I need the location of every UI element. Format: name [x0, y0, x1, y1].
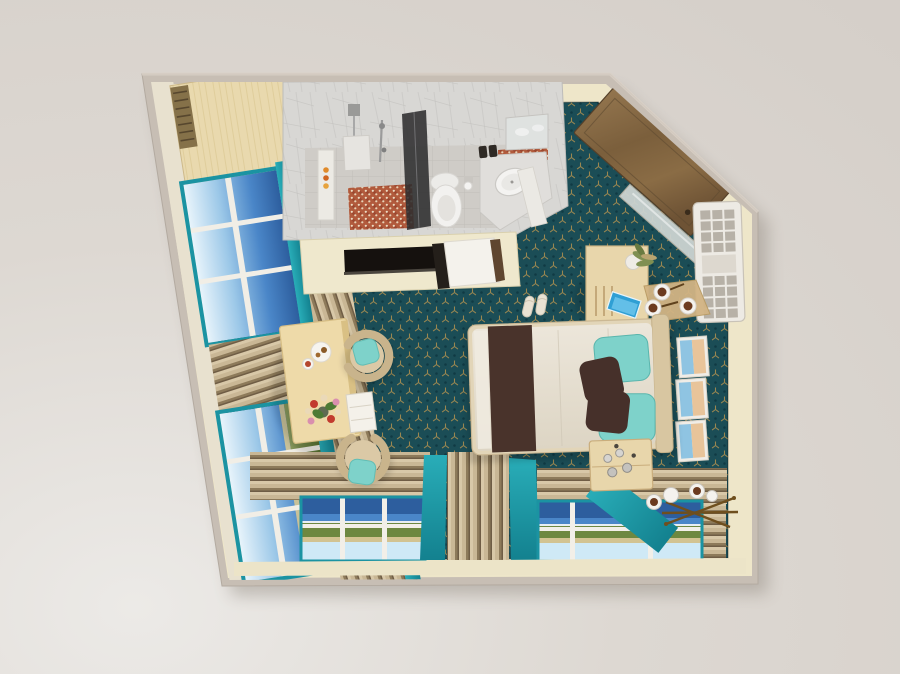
- floor-plan-svg: [0, 0, 900, 674]
- armchair-bottom: [337, 438, 393, 487]
- room-interior: [151, 51, 746, 618]
- art-sea: [680, 340, 694, 375]
- chair-cushion: [347, 458, 376, 485]
- bottle-icon: [608, 468, 618, 478]
- coffee-icon: [305, 361, 311, 367]
- shower-valve: [382, 148, 387, 153]
- window-c-mullion-2: [382, 498, 387, 560]
- shower-floor-mosaic: [348, 184, 414, 230]
- glass-icon: [604, 454, 612, 462]
- window-d-sky: [539, 543, 701, 560]
- coffee-icon: [658, 288, 667, 297]
- mirror-reflection: [515, 128, 529, 136]
- curtain-teal-mid-right: [509, 458, 539, 560]
- toilet-paper-holder: [464, 176, 473, 190]
- art-sea: [679, 424, 693, 459]
- curtain-teal-mid-left: [420, 455, 447, 560]
- glass-icon: [615, 449, 623, 457]
- coffee-icon: [650, 498, 658, 506]
- nightstand: [589, 439, 653, 491]
- toiletry-bottle-icon: [323, 175, 329, 181]
- bed-runner: [488, 325, 536, 452]
- art-beach: [691, 381, 705, 416]
- mirror-reflection: [532, 125, 544, 132]
- food-icon: [316, 353, 321, 358]
- bath-shelf: [318, 150, 334, 220]
- rack-foot: [664, 522, 668, 526]
- brown-pillow: [585, 388, 631, 434]
- wall-art: [676, 336, 710, 462]
- food-icon: [321, 347, 327, 353]
- plate: [311, 342, 331, 362]
- window-d-sand: [539, 538, 701, 543]
- bottom-drape-bunch: [447, 452, 509, 560]
- window-c-mullion-h: [302, 524, 424, 528]
- floor-plan-render: [0, 0, 900, 674]
- toiletry-bottle-icon: [323, 167, 329, 173]
- coffee-icon: [684, 302, 693, 311]
- tea-cup: [664, 488, 679, 503]
- bathroom: [283, 80, 568, 240]
- art-beach: [691, 423, 705, 458]
- art-sea: [679, 382, 693, 417]
- towel-roll: [478, 146, 487, 159]
- art-beach: [692, 339, 706, 374]
- window-c-mullion-1: [340, 498, 345, 560]
- tv-console: [300, 232, 520, 294]
- shower-shelf: [343, 135, 371, 170]
- rain-shower-head: [348, 104, 360, 116]
- window-bottom-left: [301, 497, 425, 561]
- armchair-top: [342, 334, 396, 384]
- towel-roll: [488, 145, 497, 158]
- window-c-sky: [302, 542, 424, 560]
- bottle-icon: [622, 463, 632, 473]
- coffee-icon: [693, 487, 701, 495]
- coffee-icon: [649, 304, 658, 313]
- ac-mid-band: [702, 254, 737, 273]
- window-c-sea-light: [302, 514, 424, 521]
- drawer-unit: [346, 392, 376, 433]
- hand-shower: [379, 123, 385, 129]
- tea-pot-lid: [707, 491, 718, 502]
- window-c-sand: [302, 537, 424, 542]
- rack-foot: [732, 496, 736, 500]
- toiletry-bottle-icon: [323, 183, 329, 189]
